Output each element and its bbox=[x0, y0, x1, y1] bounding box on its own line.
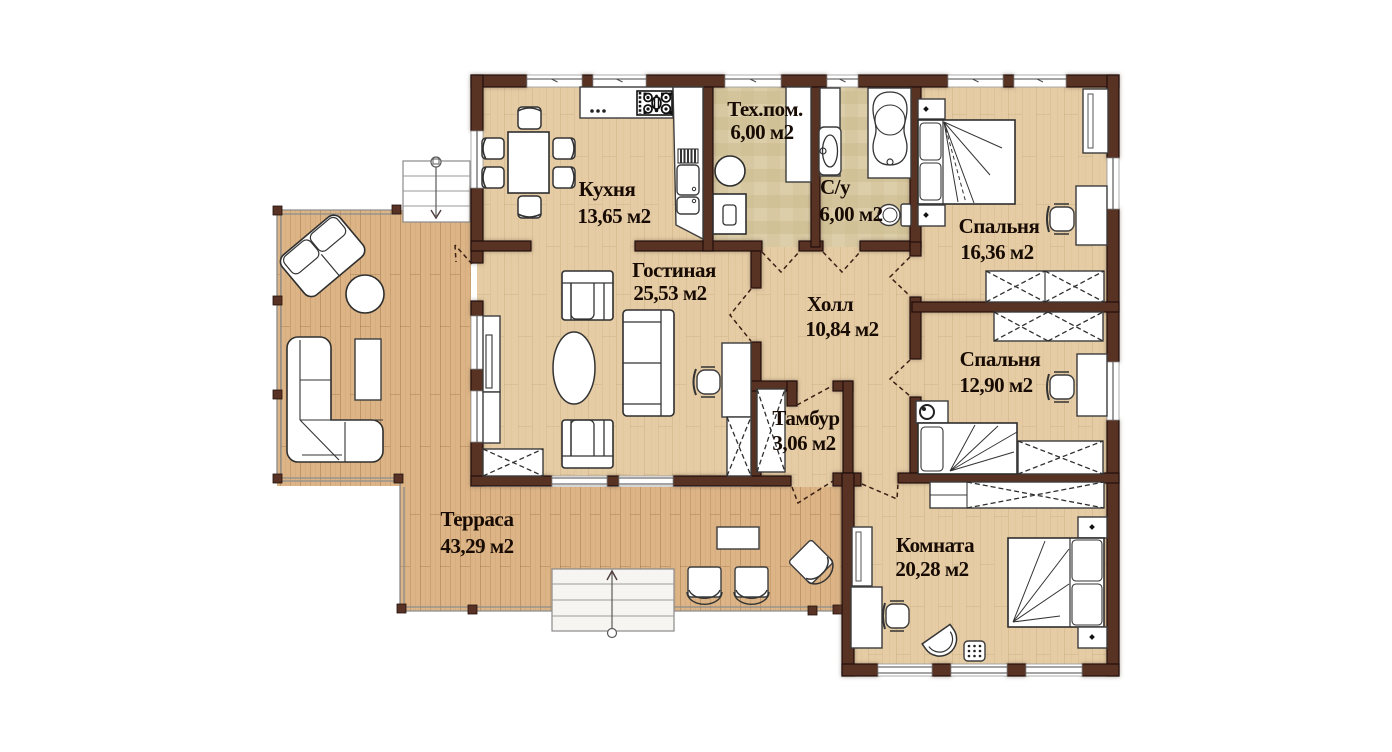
svg-text:Терраса: Терраса bbox=[441, 507, 515, 531]
svg-text:10,84 м2: 10,84 м2 bbox=[805, 317, 878, 341]
svg-text:Спальня: Спальня bbox=[960, 347, 1041, 371]
svg-text:Тамбур: Тамбур bbox=[772, 406, 839, 430]
svg-text:6,00 м2: 6,00 м2 bbox=[730, 120, 793, 144]
svg-text:Гостиная: Гостиная bbox=[632, 258, 716, 282]
svg-text:20,28 м2: 20,28 м2 bbox=[895, 557, 968, 581]
svg-text:16,36 м2: 16,36 м2 bbox=[960, 240, 1033, 264]
svg-text:43,29 м2: 43,29 м2 bbox=[440, 534, 513, 558]
svg-text:6,00 м2: 6,00 м2 bbox=[819, 202, 882, 226]
svg-text:Тех.пом.: Тех.пом. bbox=[727, 97, 803, 121]
svg-text:С/у: С/у bbox=[820, 175, 851, 199]
svg-text:Кухня: Кухня bbox=[579, 177, 636, 201]
svg-text:25,53 м2: 25,53 м2 bbox=[633, 281, 706, 305]
svg-text:Комната: Комната bbox=[896, 533, 975, 557]
svg-text:13,65 м2: 13,65 м2 bbox=[577, 204, 650, 228]
svg-text:3,06 м2: 3,06 м2 bbox=[772, 431, 835, 455]
svg-text:Холл: Холл bbox=[807, 292, 854, 316]
svg-text:Спальня: Спальня bbox=[959, 214, 1040, 238]
svg-text:12,90 м2: 12,90 м2 bbox=[959, 373, 1032, 397]
